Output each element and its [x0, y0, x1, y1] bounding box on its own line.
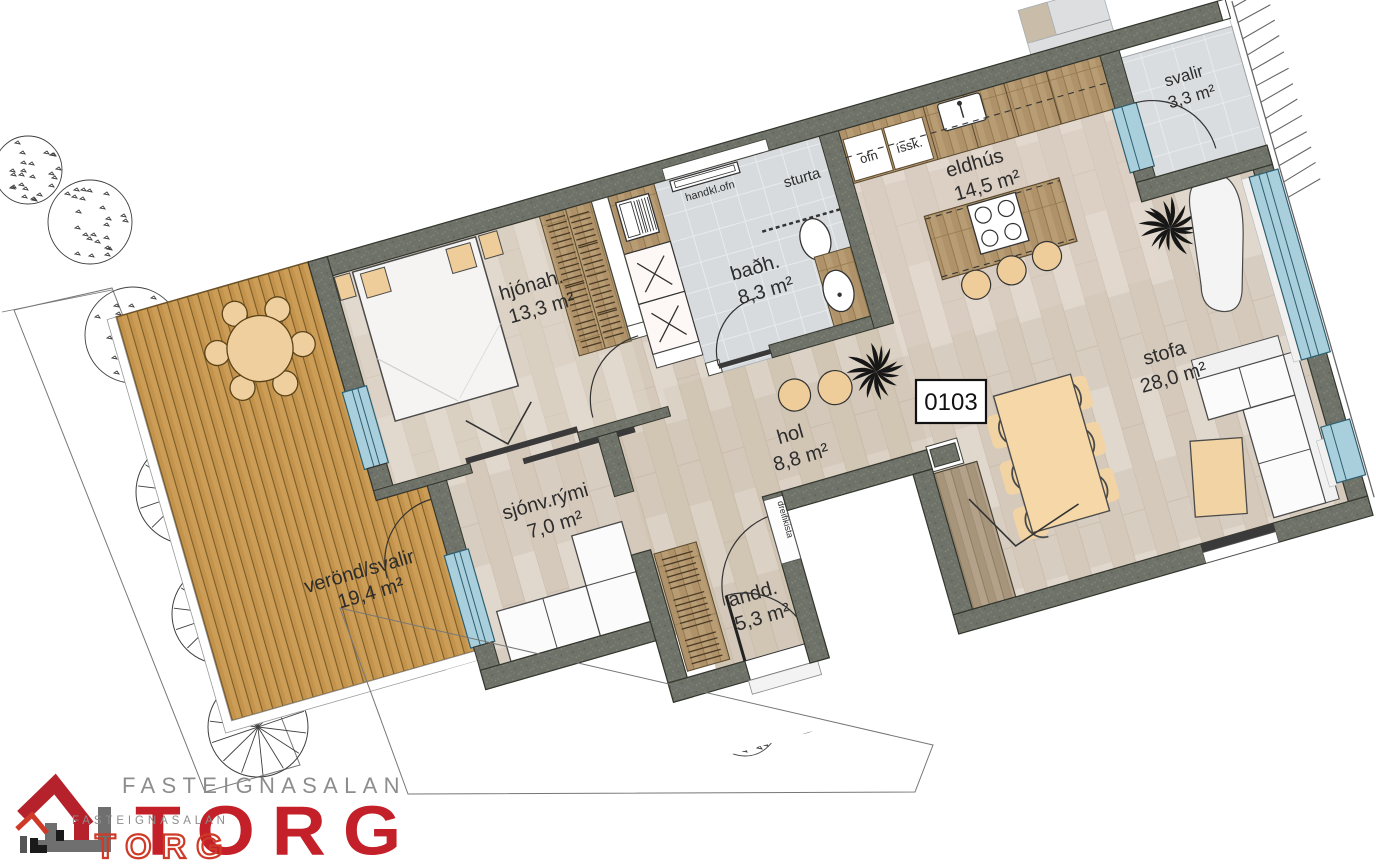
svg-text:FASTEIGNASALAN: FASTEIGNASALAN	[72, 815, 229, 827]
svg-text:TORG: TORG	[95, 828, 233, 866]
svg-text:0103: 0103	[924, 389, 977, 416]
